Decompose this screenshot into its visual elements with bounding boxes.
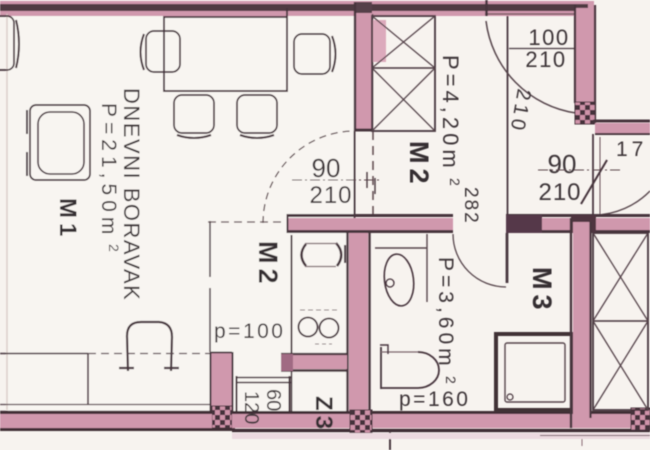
svg-text:2: 2 [443, 376, 459, 384]
svg-text:17: 17 [616, 138, 647, 161]
svg-text:p=160: p=160 [399, 388, 470, 411]
svg-text:P=3,60m: P=3,60m [434, 257, 457, 370]
svg-text:P=4,20m: P=4,20m [438, 55, 463, 172]
svg-text:2: 2 [106, 244, 122, 252]
svg-text:M3: M3 [527, 267, 557, 315]
svg-text:P=21,50m: P=21,50m [97, 103, 120, 239]
svg-text:2: 2 [447, 178, 463, 186]
svg-text:120: 120 [240, 391, 262, 424]
svg-text:90: 90 [312, 153, 341, 183]
svg-text:M2: M2 [404, 141, 434, 189]
svg-text:210: 210 [525, 47, 566, 72]
svg-text:M1: M1 [54, 198, 81, 241]
svg-text:M2: M2 [253, 241, 283, 289]
svg-text:p=100: p=100 [214, 320, 285, 343]
svg-text:282: 282 [460, 187, 481, 225]
svg-text:DNEVNI BORAVAK: DNEVNI BORAVAK [119, 88, 144, 301]
svg-text:210: 210 [309, 182, 352, 209]
svg-text:90: 90 [548, 149, 577, 179]
svg-text:60: 60 [262, 389, 284, 411]
svg-text:210: 210 [538, 179, 581, 206]
svg-text:Z3: Z3 [310, 396, 337, 434]
